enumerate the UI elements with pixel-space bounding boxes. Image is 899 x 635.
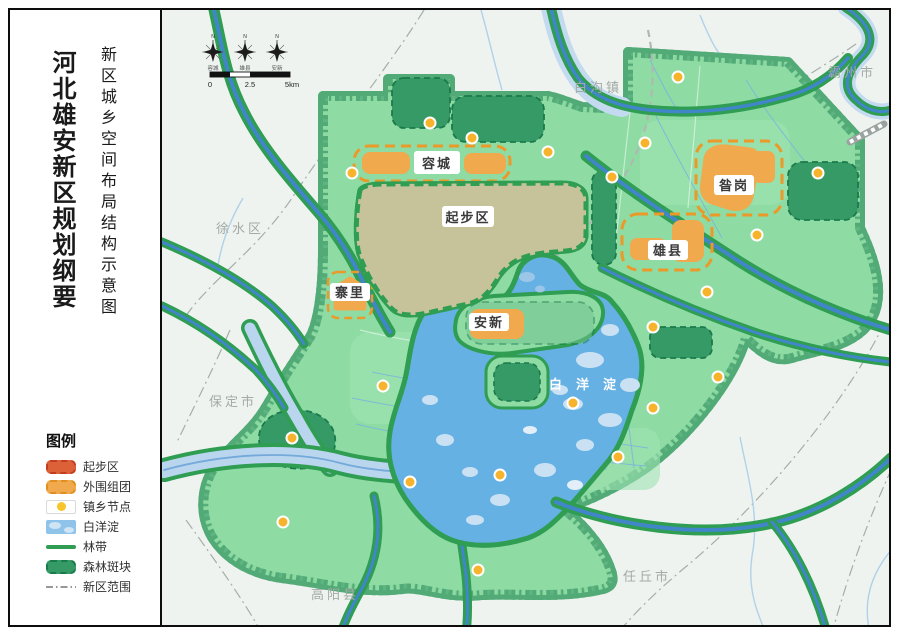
town-node-dot	[378, 381, 389, 392]
legend-item-boundary: 新区范围	[46, 579, 156, 594]
title-sidebar: 河北雄安新区规划纲要 新区城乡空间布局结构示意图 图例 起步区 外围组团 镇乡节…	[10, 10, 162, 625]
svg-text:雄县: 雄县	[239, 64, 251, 72]
town-node-dot	[287, 433, 298, 444]
town-node-dot	[648, 322, 659, 333]
forest-patch	[592, 170, 616, 265]
map-canvas: 容城 起步区 昝岗 雄县	[162, 10, 889, 625]
forest-patch	[650, 327, 712, 358]
label-zangang: 昝岗	[714, 175, 754, 195]
legend-title: 图例	[46, 430, 156, 451]
legend: 图例 起步区 外围组团 镇乡节点 白洋淀	[46, 430, 156, 599]
town-node-dot	[752, 230, 763, 241]
map-svg: 容城 起步区 昝岗 雄县	[162, 10, 889, 625]
page-title: 河北雄安新区规划纲要	[44, 50, 79, 310]
town-node-dot	[278, 517, 289, 528]
svg-text:起步区: 起步区	[444, 210, 490, 225]
place-bazhou: 霸州市	[828, 65, 876, 80]
legend-item-forest-belt: 林带	[46, 539, 156, 554]
planning-map-page: 河北雄安新区规划纲要 新区城乡空间布局结构示意图 图例 起步区 外围组团 镇乡节…	[0, 0, 899, 635]
place-baoding: 保定市	[209, 394, 257, 409]
town-node-dot	[702, 287, 713, 298]
town-node-dot	[425, 118, 436, 129]
outer-cluster-swatch	[46, 480, 76, 494]
label-zhaili: 寨里	[330, 283, 370, 301]
legend-item-town-node: 镇乡节点	[46, 499, 156, 514]
svg-text:2.5: 2.5	[245, 80, 255, 89]
wind-rose-icon: N 雄县	[234, 34, 256, 72]
cluster-block	[753, 151, 775, 183]
place-gaoyang: 高阳县	[311, 587, 359, 602]
page-subtitle: 新区城乡空间布局结构示意图	[94, 46, 118, 319]
lake-island-forest	[486, 356, 548, 408]
boundary-swatch	[46, 580, 76, 594]
town-node-dot	[568, 398, 579, 409]
lake-swatch	[46, 520, 76, 534]
page-frame: 河北雄安新区规划纲要 新区城乡空间布局结构示意图 图例 起步区 外围组团 镇乡节…	[8, 8, 891, 627]
label-rongcheng: 容城	[414, 151, 460, 174]
town-node-dot	[467, 133, 478, 144]
svg-text:安新: 安新	[474, 315, 504, 330]
svg-text:N: N	[243, 34, 247, 40]
label-anxin: 安新	[469, 313, 509, 331]
place-xushui: 徐水区	[216, 221, 264, 236]
town-node-dot	[640, 138, 651, 149]
svg-text:安新: 安新	[271, 64, 283, 72]
cluster-block	[464, 153, 506, 174]
svg-text:0: 0	[208, 80, 212, 89]
label-qibuqu: 起步区	[442, 206, 494, 227]
town-node-dot	[347, 168, 358, 179]
town-node-swatch	[46, 500, 76, 514]
legend-item-start-area: 起步区	[46, 459, 156, 474]
svg-text:容城: 容城	[207, 64, 219, 72]
svg-text:5km: 5km	[285, 80, 299, 89]
svg-text:N: N	[275, 34, 279, 40]
label-baiyangdian: 白洋淀	[549, 377, 630, 392]
label-xiongxian: 雄县	[648, 240, 688, 260]
svg-text:雄县: 雄县	[652, 243, 683, 258]
forest-belt-swatch	[46, 540, 76, 554]
svg-text:N: N	[211, 34, 215, 40]
town-node-dot	[405, 477, 416, 488]
legend-item-lake: 白洋淀	[46, 519, 156, 534]
place-baigou: 白沟镇	[574, 80, 622, 95]
svg-text:昝岗: 昝岗	[719, 178, 749, 193]
forest-patch	[452, 96, 544, 142]
town-node-dot	[607, 172, 618, 183]
town-node-dot	[713, 372, 724, 383]
place-renqiu: 任丘市	[623, 569, 671, 584]
legend-item-forest-patch: 森林斑块	[46, 559, 156, 574]
svg-text:寨里: 寨里	[334, 285, 365, 300]
town-node-dot	[813, 168, 824, 179]
forest-patch-swatch	[46, 560, 76, 574]
town-node-dot	[648, 403, 659, 414]
town-node-dot	[473, 565, 484, 576]
scale-bar: 0 2.5 5km	[208, 72, 299, 89]
svg-text:容城: 容城	[421, 156, 452, 171]
town-node-dot	[613, 452, 624, 463]
legend-item-outer-cluster: 外围组团	[46, 479, 156, 494]
town-node-dot	[673, 72, 684, 83]
town-node-dot	[495, 470, 506, 481]
forest-patch	[392, 78, 450, 128]
town-node-dot	[543, 147, 554, 158]
wind-rose-icon: N 安新	[266, 34, 288, 72]
cluster-block	[362, 152, 410, 174]
start-area-swatch	[46, 460, 76, 474]
